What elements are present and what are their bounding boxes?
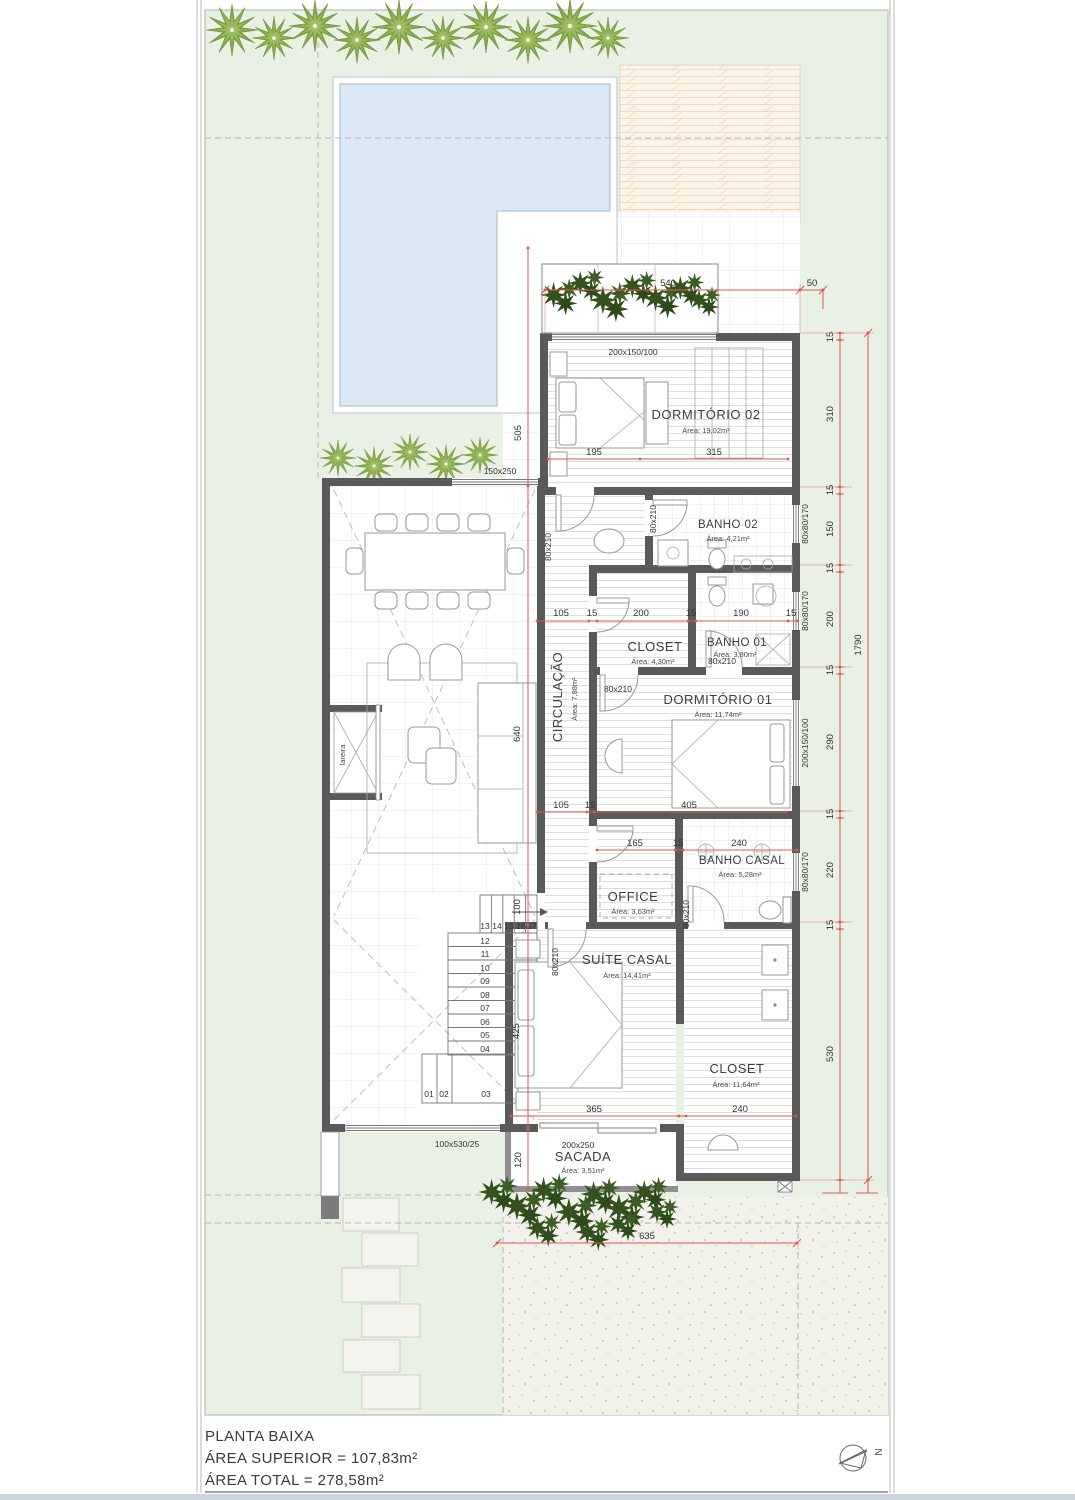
window-banho02 — [792, 505, 800, 543]
chain-15-5: 15 — [825, 809, 836, 820]
label-dormitorio01: DORMITÓRIO 01 — [663, 692, 772, 707]
stair-08: 08 — [480, 990, 490, 1000]
label-win-dorm01: 200x150/100 — [800, 718, 810, 767]
stair-11: 11 — [481, 949, 490, 959]
window-living-front — [345, 1124, 500, 1132]
stair-01: 01 — [424, 1089, 434, 1099]
label-banho-casal: BANHO CASAL — [699, 855, 785, 867]
label-door-banho02: 80x210 — [648, 505, 658, 533]
area-dormitorio01: Área: 11,74m² — [695, 710, 742, 719]
stair-09: 09 — [480, 976, 490, 986]
column — [321, 1132, 339, 1196]
area-sacada: Área: 3,51m² — [561, 1166, 605, 1175]
area-closet-casal: Área: 11,64m² — [713, 1080, 760, 1089]
area-dormitorio02: Área: 19,02m² — [682, 426, 730, 435]
planter-top — [540, 264, 721, 333]
dim-240a: 240 — [731, 838, 747, 849]
lareira-label: lareira — [338, 744, 347, 766]
area-closet01: Área: 4,30m² — [631, 657, 675, 666]
dim-540: 540 — [660, 278, 676, 289]
label-suite-casal: SUÍTE CASAL — [582, 952, 672, 967]
dim-505: 505 — [513, 425, 524, 441]
stair-16: 16 — [516, 921, 526, 931]
label-win-living: 150x250 — [484, 466, 517, 476]
dim-240b: 240 — [732, 1104, 748, 1115]
sacada-sliding-door — [538, 1123, 660, 1133]
area-banho-casal: Área: 5,28m² — [718, 870, 762, 879]
area-suite-casal: Área: 14,41m² — [603, 971, 651, 980]
chain-15-2: 15 — [825, 485, 836, 496]
label-door-dorm02: 80x210 — [543, 533, 553, 561]
label-closet01: CLOSET — [627, 639, 682, 654]
label-win-banho02: 80x80/170 — [800, 504, 810, 544]
label-win-banho01: 80x80/170 — [800, 591, 810, 631]
stair-02: 02 — [439, 1089, 449, 1099]
label-door-banho-casal: 80x210 — [681, 900, 691, 928]
window-dorm01 — [792, 700, 800, 786]
label-circulacao: CIRCULAÇÃO — [550, 652, 565, 742]
stair-04: 04 — [480, 1044, 490, 1054]
floor-plan-svg: lareira 13 14 15 16 17 12 11 10 09 08 07… — [0, 0, 1075, 1500]
label-closet-casal: CLOSET — [709, 1061, 764, 1076]
hall-basin — [594, 529, 624, 553]
dim-640: 640 — [512, 726, 523, 742]
stair-03: 03 — [481, 1089, 491, 1099]
dim-195: 195 — [586, 447, 602, 458]
area-banho01: Área: 3,80m² — [713, 650, 757, 659]
label-win-dorm02: 200x150/100 — [608, 347, 657, 357]
window-banho-casal — [792, 853, 800, 891]
dim-425: 425 — [511, 1023, 522, 1039]
stair-07: 07 — [480, 1003, 490, 1013]
chain-200: 200 — [825, 611, 836, 627]
dim-100: 100 — [512, 899, 523, 915]
dim-15a: 15 — [587, 608, 598, 619]
dim-200a: 200 — [633, 608, 649, 619]
dim-120: 120 — [513, 1152, 524, 1168]
label-sacada: SACADA — [555, 1149, 611, 1164]
dim-15e: 15 — [673, 838, 684, 849]
stair-05: 05 — [480, 1030, 490, 1040]
garden-wall-stub — [321, 1196, 339, 1219]
label-dormitorio02: DORMITÓRIO 02 — [651, 407, 760, 422]
drawing-sheet: lareira 13 14 15 16 17 12 11 10 09 08 07… — [0, 0, 1075, 1500]
title-block: PLANTA BAIXA ÁREA SUPERIOR = 107,83m² ÁR… — [205, 1428, 888, 1492]
dim-315: 315 — [706, 447, 722, 458]
stair-10: 10 — [480, 963, 490, 973]
label-office: OFFICE — [608, 889, 659, 904]
wood-deck — [620, 65, 800, 225]
dim-105a: 105 — [553, 608, 569, 619]
chain-220: 220 — [825, 862, 836, 878]
dim-365: 365 — [586, 1104, 602, 1115]
stair-15: 15 — [504, 921, 514, 931]
area-circulacao: Área: 7,88m² — [570, 677, 579, 721]
label-door-suite: 80x210 — [550, 948, 560, 976]
label-banho01: BANHO 01 — [707, 637, 767, 649]
area-banho02: Área: 4,21m² — [706, 534, 750, 543]
corridor-floor — [545, 565, 589, 929]
stair-12: 12 — [480, 936, 490, 946]
stair-14: 14 — [492, 921, 502, 931]
label-banho02: BANHO 02 — [698, 519, 758, 531]
chain-15-6: 15 — [825, 920, 836, 931]
dim-15c: 15 — [786, 608, 797, 619]
label-win-front: 100x530/25 — [435, 1139, 480, 1149]
chain-310: 310 — [825, 406, 836, 422]
dim-105b: 105 — [553, 800, 569, 811]
chain-15-4: 15 — [825, 665, 836, 676]
chain-15-3: 15 — [825, 563, 836, 574]
north-arrow: N — [839, 1445, 883, 1471]
dim-165: 165 — [627, 838, 643, 849]
stair-06: 06 — [480, 1017, 490, 1027]
dim-190: 190 — [733, 608, 749, 619]
chain-15-1: 15 — [825, 332, 836, 343]
chain-150: 150 — [825, 521, 836, 537]
sheet-title: PLANTA BAIXA — [205, 1428, 315, 1445]
stair-13: 13 — [480, 921, 490, 931]
chain-530: 530 — [825, 1046, 836, 1062]
window-dorm02-top — [552, 333, 716, 341]
label-win-banho-casal: 80x80/170 — [800, 852, 810, 892]
fireplace: lareira — [330, 705, 382, 800]
sheet-area-total: ÁREA TOTAL = 278,58m² — [205, 1472, 384, 1489]
dim-405: 405 — [681, 800, 697, 811]
gravel-area — [503, 1197, 888, 1415]
dim-50: 50 — [807, 278, 818, 289]
north-label: N — [872, 1448, 883, 1455]
dim-15b: 15 — [686, 608, 697, 619]
label-door-dorm01: 80x210 — [604, 684, 632, 694]
chain-290: 290 — [825, 734, 836, 750]
sheet-area-superior: ÁREA SUPERIOR = 107,83m² — [205, 1450, 418, 1467]
window-living-top — [452, 478, 538, 486]
screen-edge-strip — [0, 1494, 1075, 1500]
chain-1790: 1790 — [853, 634, 864, 655]
dim-15d: 15 — [585, 800, 596, 811]
dim-635: 635 — [639, 1231, 655, 1242]
area-office: Área: 3,63m² — [611, 907, 655, 916]
